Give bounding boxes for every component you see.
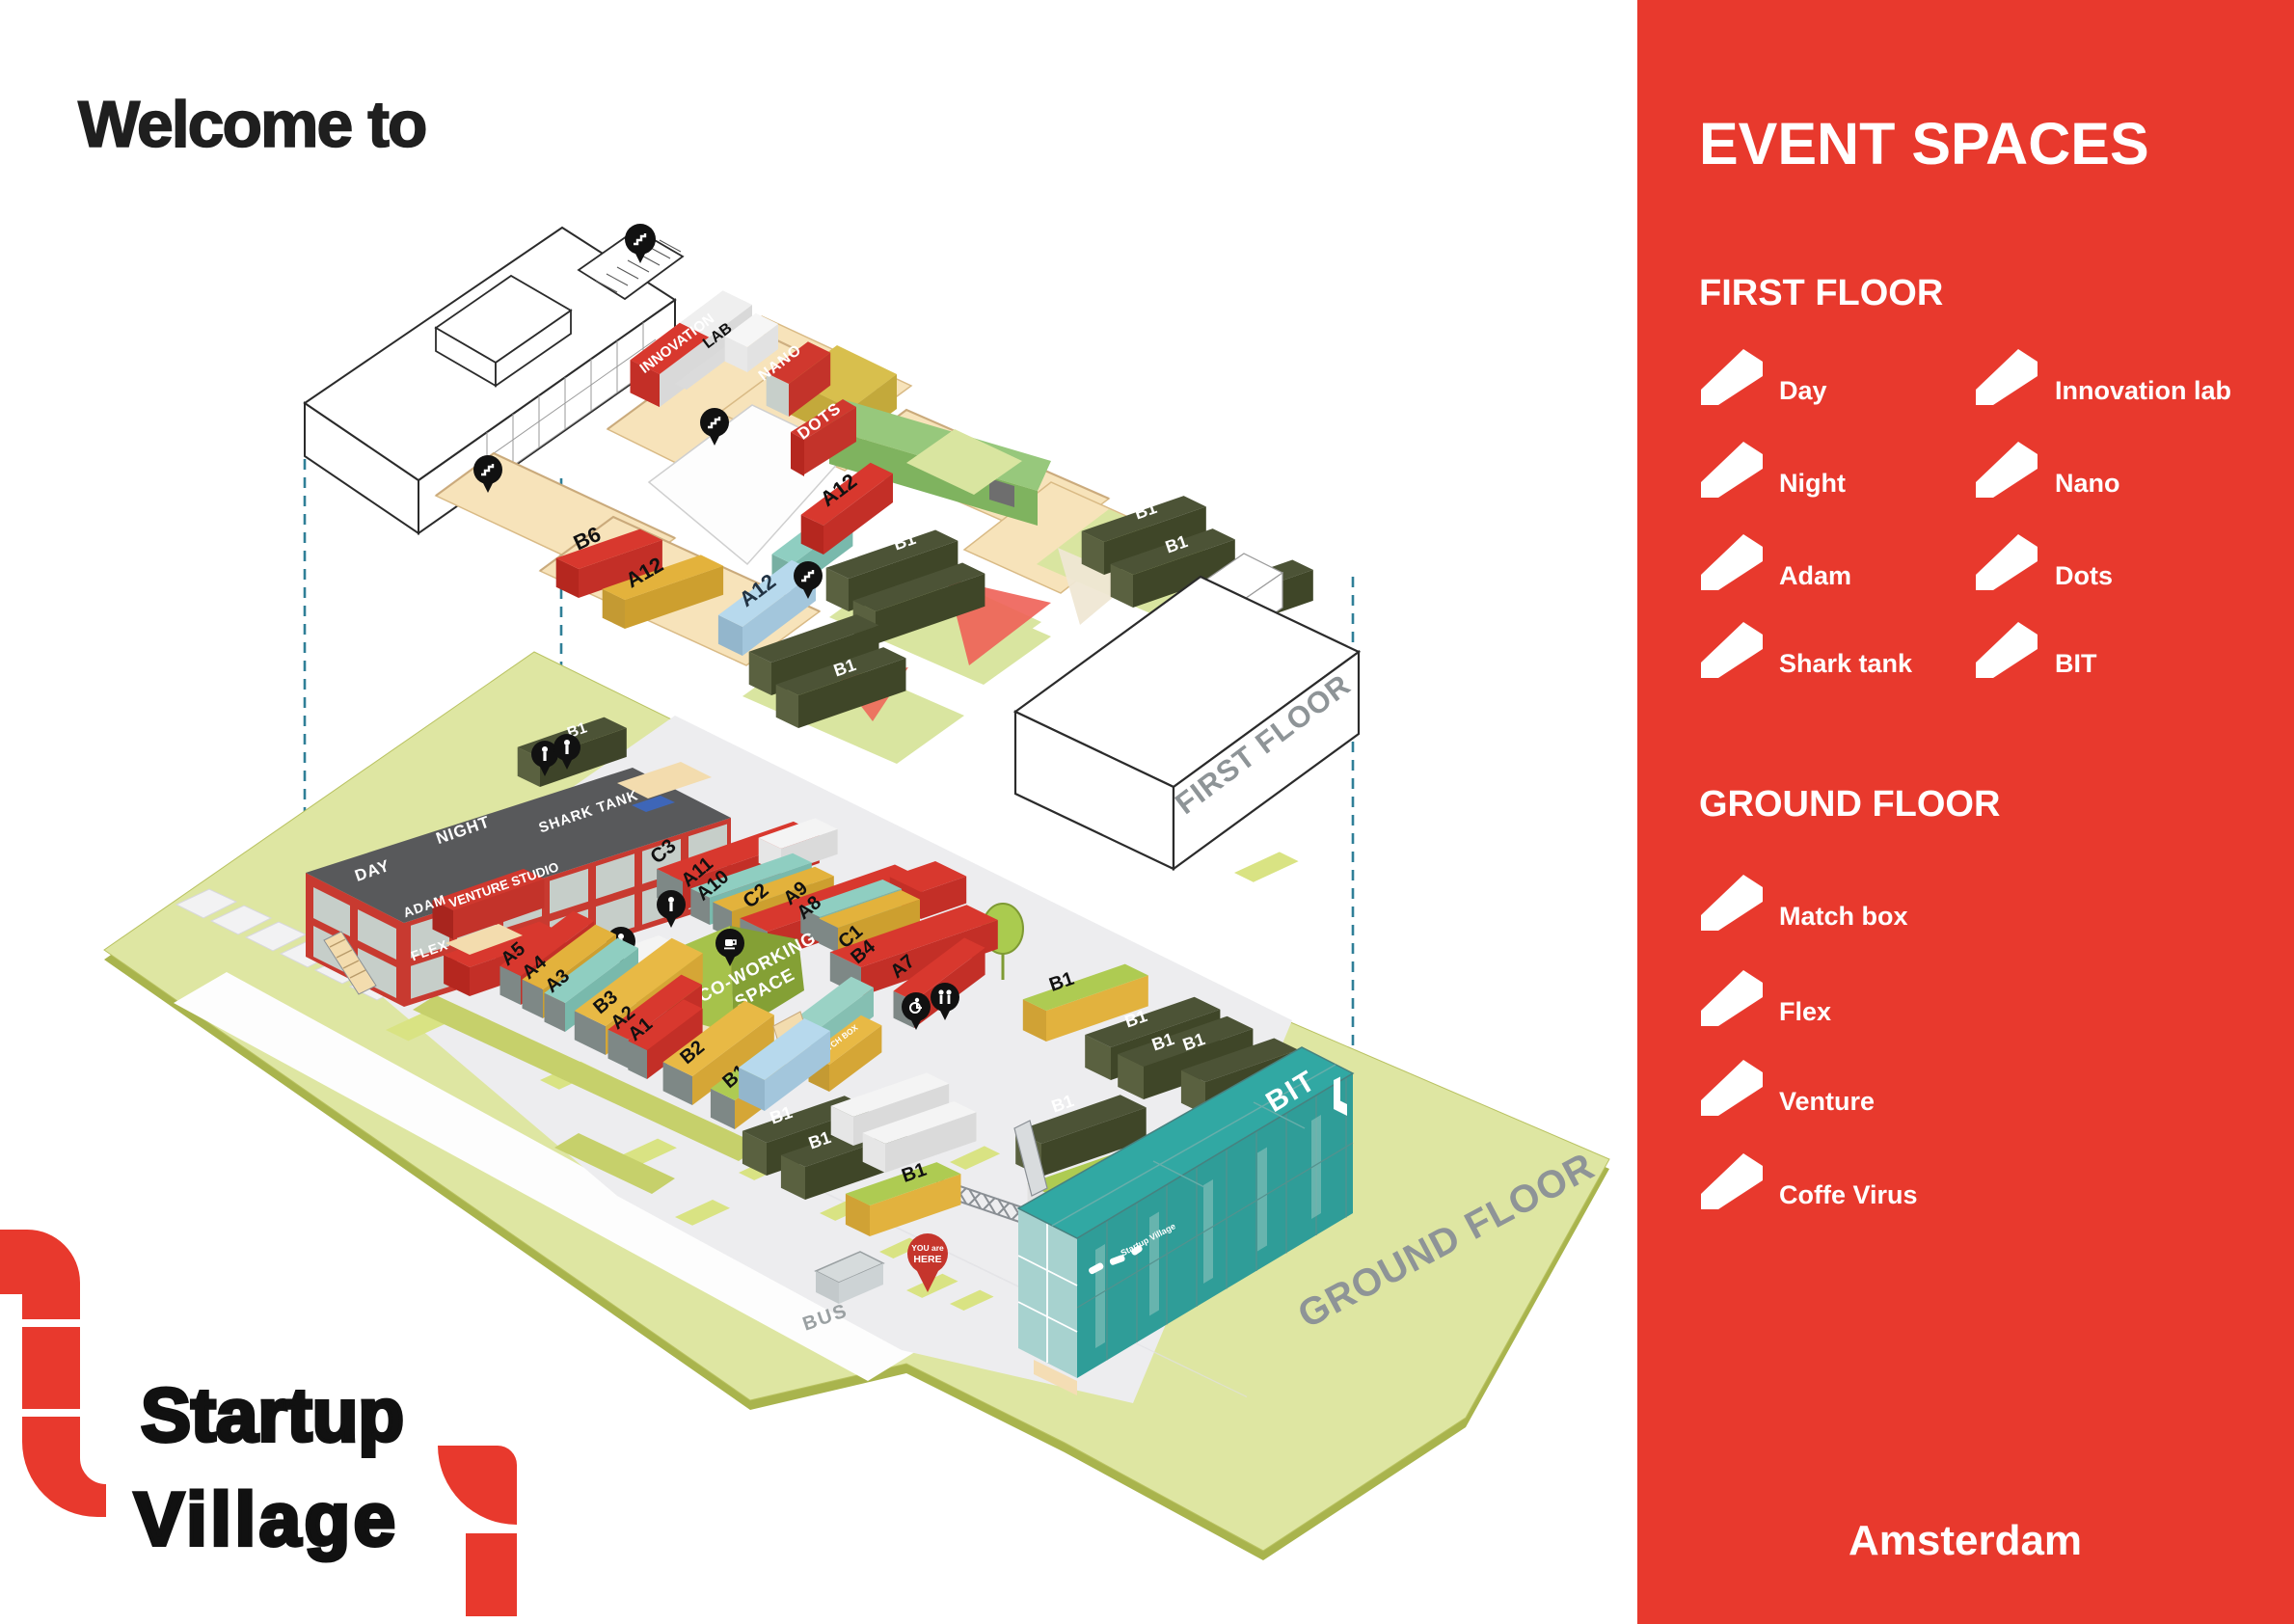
svg-text:GROUND FLOOR: GROUND FLOOR — [1699, 784, 2000, 825]
svg-text:Welcome to: Welcome to — [78, 88, 425, 161]
svg-text:Startup: Startup — [141, 1372, 404, 1457]
svg-text:Coffe Virus: Coffe Virus — [1779, 1180, 1918, 1209]
svg-text:Village: Village — [134, 1476, 399, 1561]
svg-text:Night: Night — [1779, 469, 1846, 498]
svg-text:Adam: Adam — [1779, 561, 1851, 590]
svg-text:Flex: Flex — [1779, 997, 1831, 1026]
svg-text:Dots: Dots — [2055, 561, 2113, 590]
svg-text:Innovation lab: Innovation lab — [2055, 376, 2231, 405]
svg-text:Amsterdam: Amsterdam — [1849, 1517, 2082, 1564]
svg-text:BIT: BIT — [2055, 649, 2097, 678]
svg-text:HERE: HERE — [913, 1254, 941, 1265]
svg-text:Shark tank: Shark tank — [1779, 649, 1913, 678]
svg-text:Nano: Nano — [2055, 469, 2120, 498]
svg-text:Venture: Venture — [1779, 1087, 1875, 1116]
svg-text:FIRST FLOOR: FIRST FLOOR — [1699, 273, 1943, 313]
svg-text:YOU are: YOU are — [911, 1243, 944, 1253]
svg-text:Match box: Match box — [1779, 902, 1908, 931]
svg-text:EVENT SPACES: EVENT SPACES — [1699, 111, 2149, 176]
svg-text:Day: Day — [1779, 376, 1827, 405]
